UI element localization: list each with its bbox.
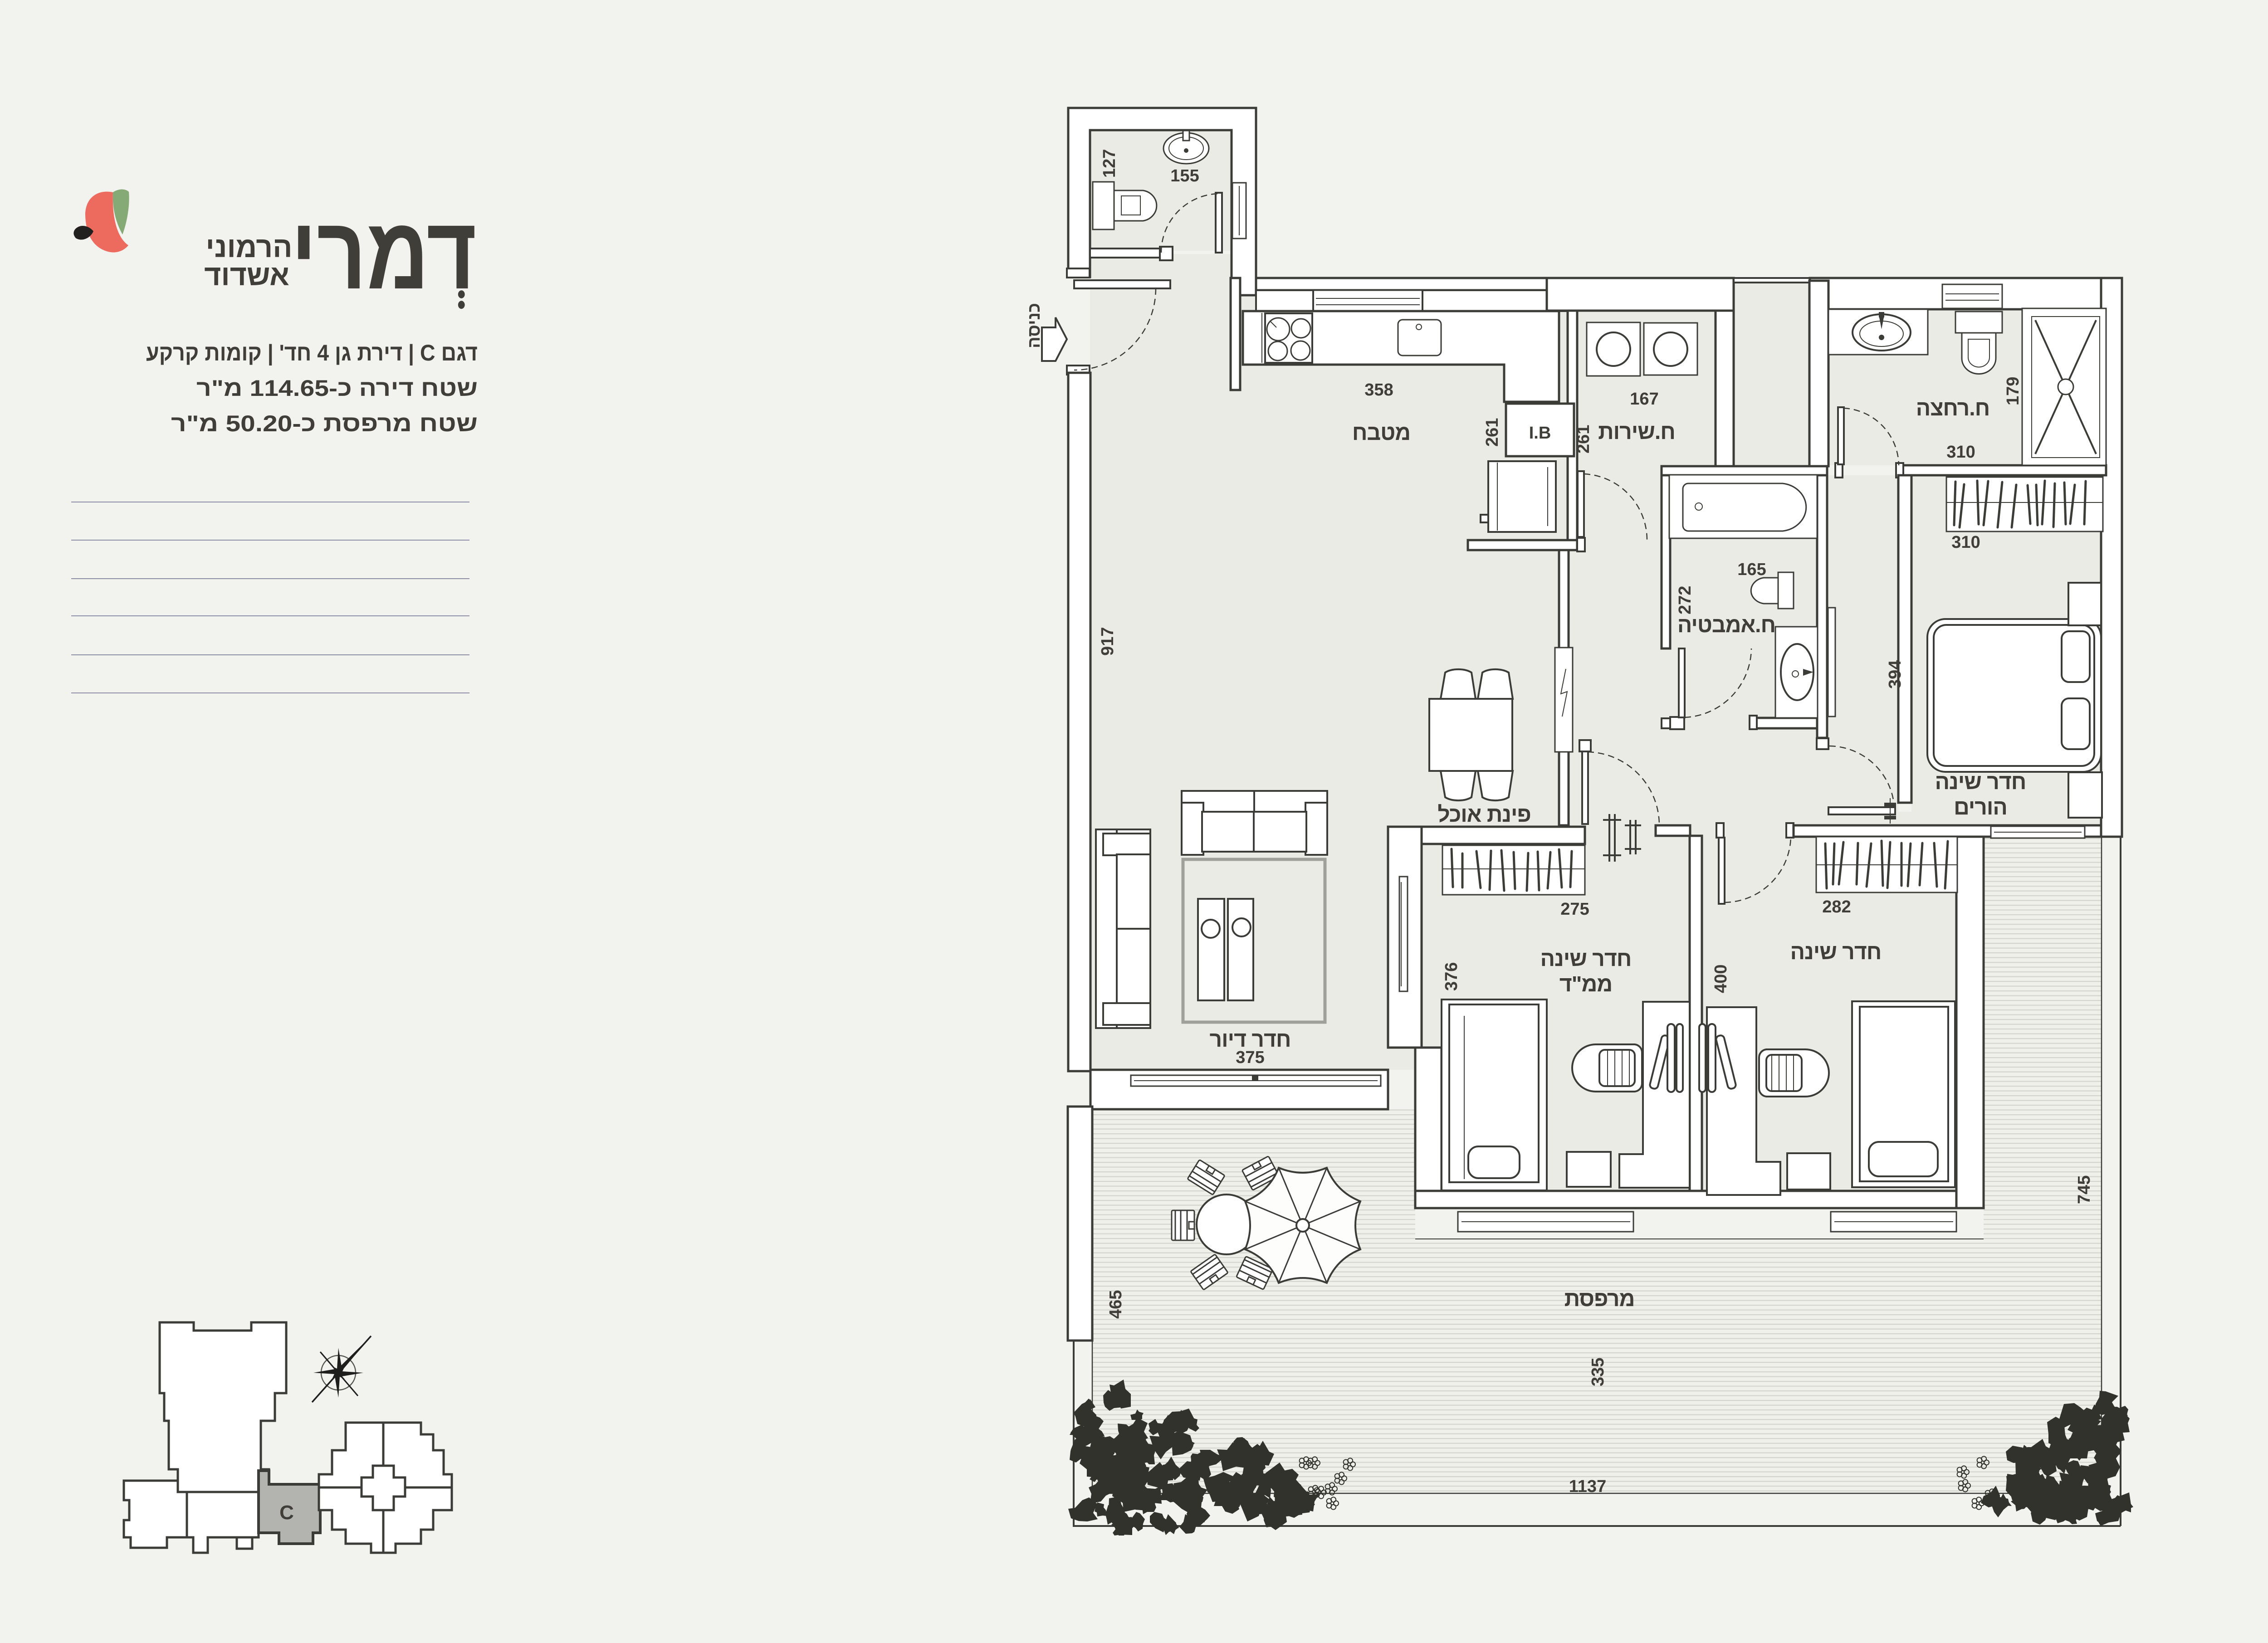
svg-text:1137: 1137 bbox=[1569, 1477, 1606, 1496]
svg-text:חדר שינה: חדר שינה bbox=[1790, 940, 1882, 964]
svg-text:165: 165 bbox=[1737, 560, 1766, 579]
svg-text:282: 282 bbox=[1822, 897, 1851, 917]
svg-text:310: 310 bbox=[1946, 443, 1975, 462]
svg-text:דגם C | דירת גן 4 חד' | קומות: דגם C | דירת גן 4 חד' | קומות קרקע bbox=[146, 340, 478, 366]
svg-text:261: 261 bbox=[1574, 425, 1593, 453]
svg-text:חדר שינה: חדר שינה bbox=[1540, 947, 1632, 971]
svg-text:272: 272 bbox=[1676, 586, 1695, 614]
svg-text:חדר שינה: חדר שינה bbox=[1935, 770, 2026, 794]
svg-text:דְמרי: דְמרי bbox=[291, 195, 477, 311]
svg-text:155: 155 bbox=[1170, 166, 1199, 185]
svg-text:261: 261 bbox=[1483, 418, 1502, 447]
svg-text:שטח מרפסת כ-50.20 מ"ר: שטח מרפסת כ-50.20 מ"ר bbox=[171, 411, 478, 436]
svg-text:I.B: I.B bbox=[1529, 424, 1551, 443]
svg-text:310: 310 bbox=[1951, 533, 1980, 552]
svg-text:745: 745 bbox=[2075, 1175, 2094, 1204]
svg-text:הורים: הורים bbox=[1954, 795, 2007, 819]
svg-text:358: 358 bbox=[1364, 380, 1393, 400]
svg-text:179: 179 bbox=[2004, 377, 2023, 405]
svg-text:394: 394 bbox=[1886, 660, 1905, 689]
svg-text:כניסה: כניסה bbox=[1025, 303, 1044, 348]
svg-text:שטח דירה כ-114.65 מ"ר: שטח דירה כ-114.65 מ"ר bbox=[196, 375, 478, 401]
svg-text:ח.רחצה: ח.רחצה bbox=[1916, 396, 1989, 420]
svg-text:167: 167 bbox=[1630, 390, 1658, 409]
svg-text:אשדוד: אשדוד bbox=[204, 259, 289, 292]
svg-text:275: 275 bbox=[1560, 900, 1589, 919]
svg-text:מרפסת: מרפסת bbox=[1564, 1287, 1635, 1311]
svg-text:465: 465 bbox=[1106, 1290, 1125, 1319]
svg-text:917: 917 bbox=[1098, 627, 1117, 656]
svg-text:127: 127 bbox=[1100, 149, 1119, 178]
svg-text:חדר דיור: חדר דיור bbox=[1209, 1028, 1290, 1052]
svg-text:400: 400 bbox=[1711, 965, 1730, 993]
svg-text:פינת אוכל: פינת אוכל bbox=[1437, 803, 1531, 827]
svg-text:ח.שירות: ח.שירות bbox=[1598, 420, 1675, 444]
svg-text:ח.אמבטיה: ח.אמבטיה bbox=[1677, 613, 1775, 637]
svg-text:376: 376 bbox=[1442, 962, 1461, 991]
svg-text:C: C bbox=[279, 1502, 294, 1524]
svg-text:335: 335 bbox=[1589, 1358, 1608, 1386]
svg-text:מטבח: מטבח bbox=[1352, 421, 1410, 445]
svg-text:ממ"ד: ממ"ד bbox=[1559, 972, 1612, 996]
